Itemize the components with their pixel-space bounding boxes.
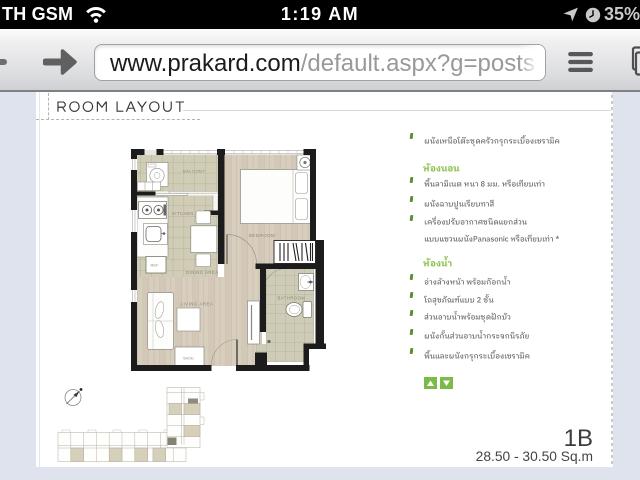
svg-text:BEDROOM: BEDROOM [249,233,275,238]
svg-text:REF: REF [151,263,160,268]
svg-text:LIVING AREA: LIVING AREA [181,302,214,307]
svg-text:BALCONY: BALCONY [183,169,206,174]
svg-text:DINING AREA: DINING AREA [186,270,219,275]
svg-text:SHOE: SHOE [183,357,194,361]
svg-text:BATHROOM: BATHROOM [278,296,306,301]
svg-text:KITCHEN: KITCHEN [172,211,194,216]
